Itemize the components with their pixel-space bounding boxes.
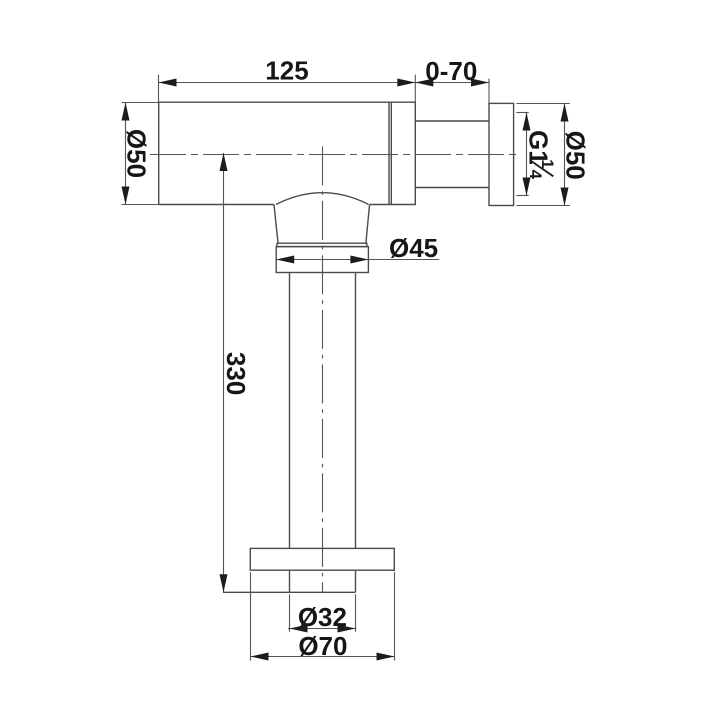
svg-text:Ø50: Ø50: [561, 131, 591, 180]
svg-text:0-70: 0-70: [425, 56, 477, 86]
svg-text:4: 4: [526, 170, 545, 180]
svg-text:Ø32: Ø32: [298, 602, 347, 632]
svg-text:330: 330: [221, 352, 251, 395]
svg-text:Ø70: Ø70: [298, 631, 347, 661]
svg-text:125: 125: [265, 56, 308, 86]
svg-text:Ø45: Ø45: [389, 233, 438, 263]
svg-text:Ø50: Ø50: [122, 129, 152, 178]
